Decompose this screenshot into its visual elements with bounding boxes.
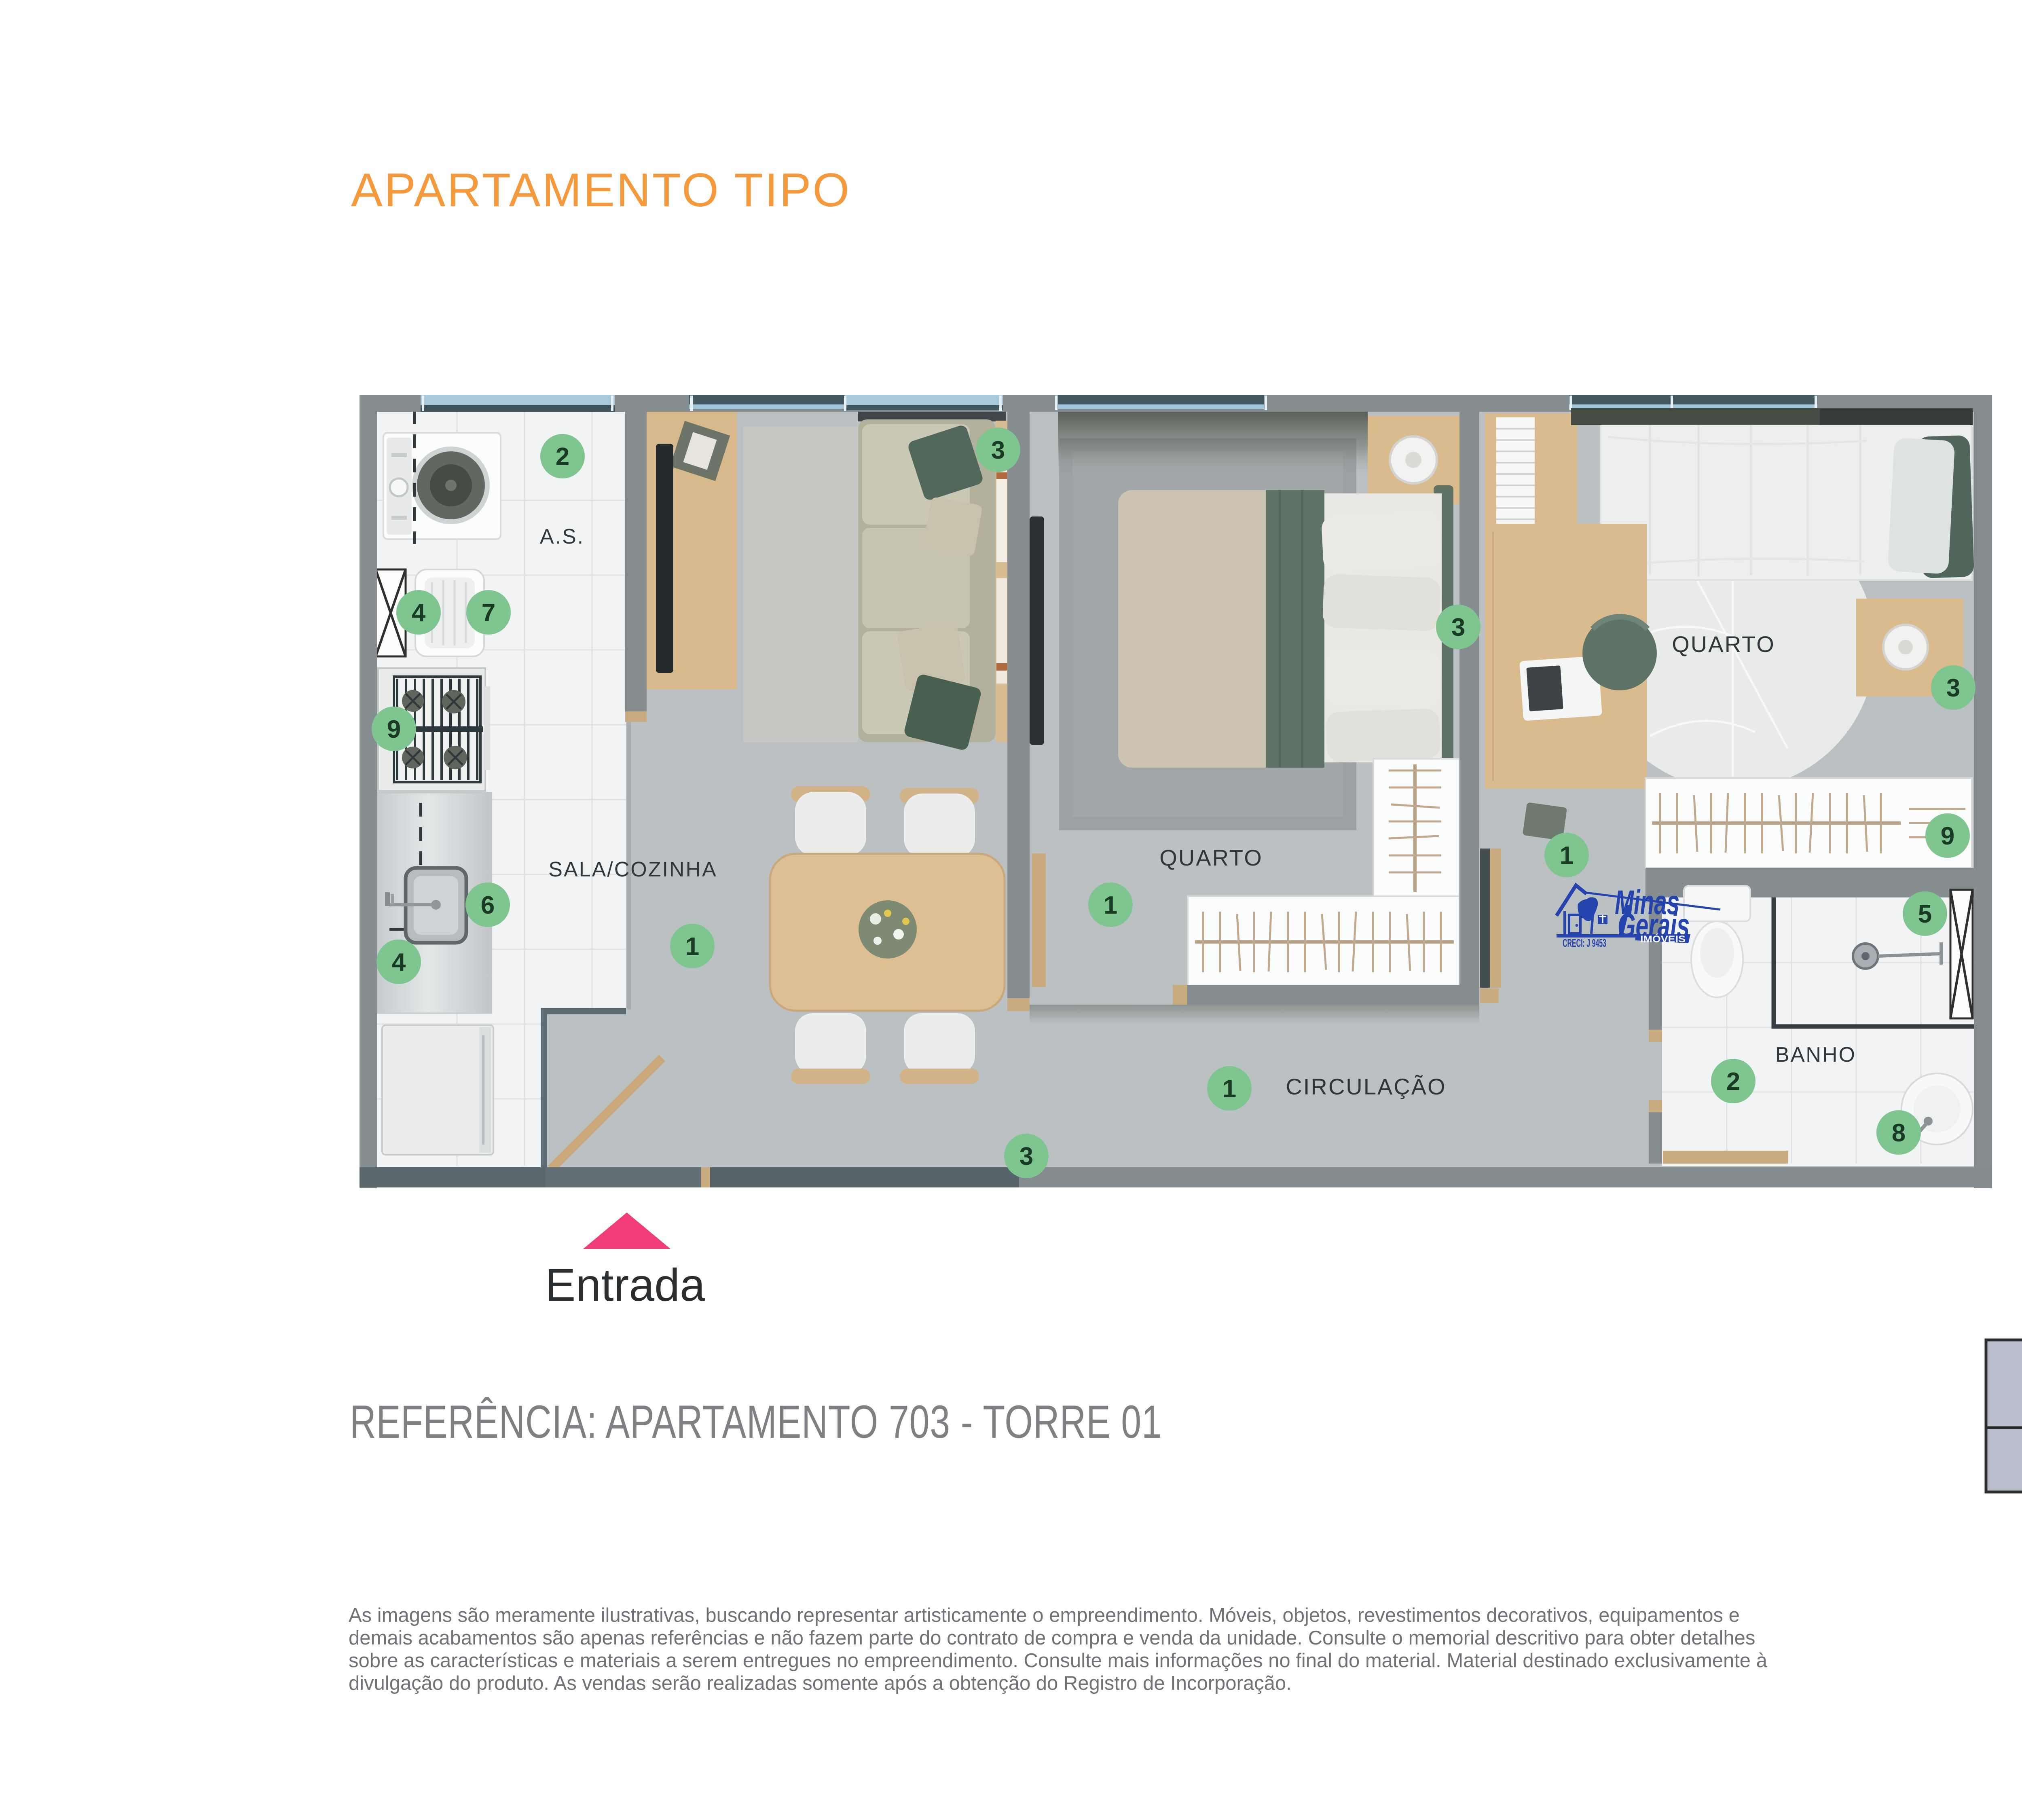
- svg-text:3: 3: [1019, 1143, 1033, 1170]
- svg-text:1: 1: [1223, 1075, 1236, 1103]
- svg-text:4: 4: [412, 599, 426, 627]
- svg-text:3: 3: [1946, 674, 1960, 702]
- svg-text:CRECI: J 9453: CRECI: J 9453: [1563, 937, 1606, 949]
- svg-text:3: 3: [991, 436, 1005, 464]
- svg-text:A.S.: A.S.: [540, 525, 584, 548]
- svg-text:QUARTO: QUARTO: [1159, 845, 1263, 870]
- svg-text:9: 9: [1941, 822, 1954, 850]
- svg-text:7: 7: [482, 599, 495, 627]
- svg-text:QUARTO: QUARTO: [1672, 631, 1775, 657]
- svg-text:1: 1: [685, 933, 699, 961]
- svg-text:4: 4: [392, 948, 406, 976]
- svg-text:CIRCULAÇÃO: CIRCULAÇÃO: [1286, 1074, 1446, 1099]
- svg-text:BANHO: BANHO: [1775, 1043, 1856, 1067]
- svg-text:5: 5: [1918, 900, 1932, 928]
- svg-text:2: 2: [1726, 1068, 1740, 1096]
- svg-text:6: 6: [481, 891, 495, 919]
- svg-text:8: 8: [1892, 1119, 1906, 1147]
- svg-text:IMÓVEIS: IMÓVEIS: [1640, 933, 1686, 945]
- svg-text:2: 2: [556, 443, 569, 471]
- svg-text:1: 1: [1104, 891, 1117, 919]
- svg-text:3: 3: [1451, 614, 1465, 641]
- svg-text:SALA/COZINHA: SALA/COZINHA: [548, 858, 717, 881]
- svg-text:1: 1: [1560, 842, 1574, 870]
- svg-text:9: 9: [387, 715, 401, 743]
